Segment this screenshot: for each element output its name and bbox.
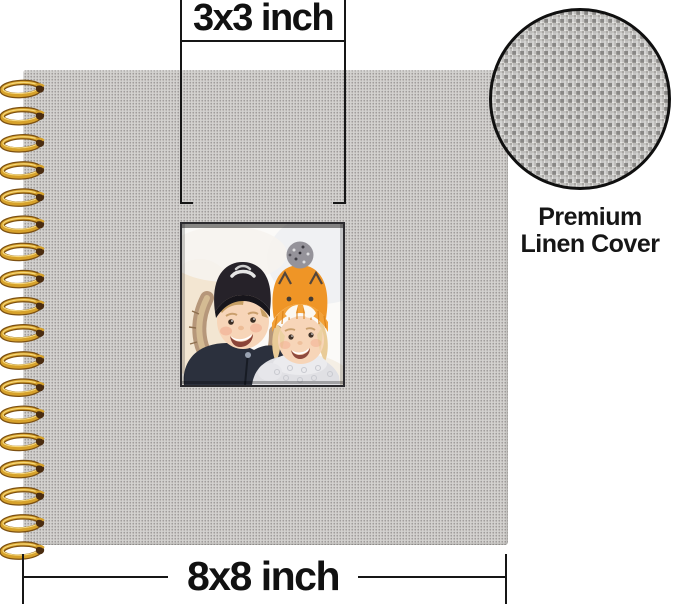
spiral-loop	[2, 407, 45, 422]
callout-line-1: Premium	[497, 204, 679, 231]
dimension-underline-top	[181, 40, 345, 42]
dimension-line-bottom-right-segment	[358, 576, 506, 578]
spiral-loop	[2, 217, 45, 232]
window-dimension-label: 3x3 inch	[181, 0, 345, 40]
callout-line-2: Linen Cover	[497, 231, 679, 258]
spiral-loop	[2, 81, 45, 96]
window-photo	[182, 224, 343, 385]
spiral-loop	[2, 434, 45, 449]
texture-magnifier-circle	[489, 8, 671, 190]
callout-label: Premium Linen Cover	[497, 204, 679, 258]
spiral-loop	[2, 244, 45, 259]
spiral-loop	[2, 380, 45, 395]
spiral-loop	[2, 163, 45, 178]
photo-window	[180, 222, 345, 387]
spiral-loop	[2, 190, 45, 205]
dimension-foot-top-right	[333, 202, 344, 204]
spiral-loop	[2, 461, 45, 476]
dimension-foot-top-left	[182, 202, 193, 204]
dimension-tick-bottom-right	[505, 554, 507, 604]
spiral-loop	[2, 108, 45, 123]
spiral-loop	[2, 298, 45, 313]
cover-dimension-label: 8x8 inch	[181, 555, 345, 597]
dimension-tick-bottom-left	[22, 554, 24, 604]
spiral-binding	[0, 0, 52, 604]
spiral-loop	[2, 136, 45, 151]
spiral-loop	[2, 326, 45, 341]
dimension-line-bottom-left-segment	[23, 576, 168, 578]
spiral-loop	[2, 271, 45, 286]
spiral-loop	[2, 353, 45, 368]
product-image: Premium Linen Cover 3x3 inch	[0, 0, 679, 604]
spiral-loop	[2, 489, 45, 504]
spiral-loop	[2, 516, 45, 531]
